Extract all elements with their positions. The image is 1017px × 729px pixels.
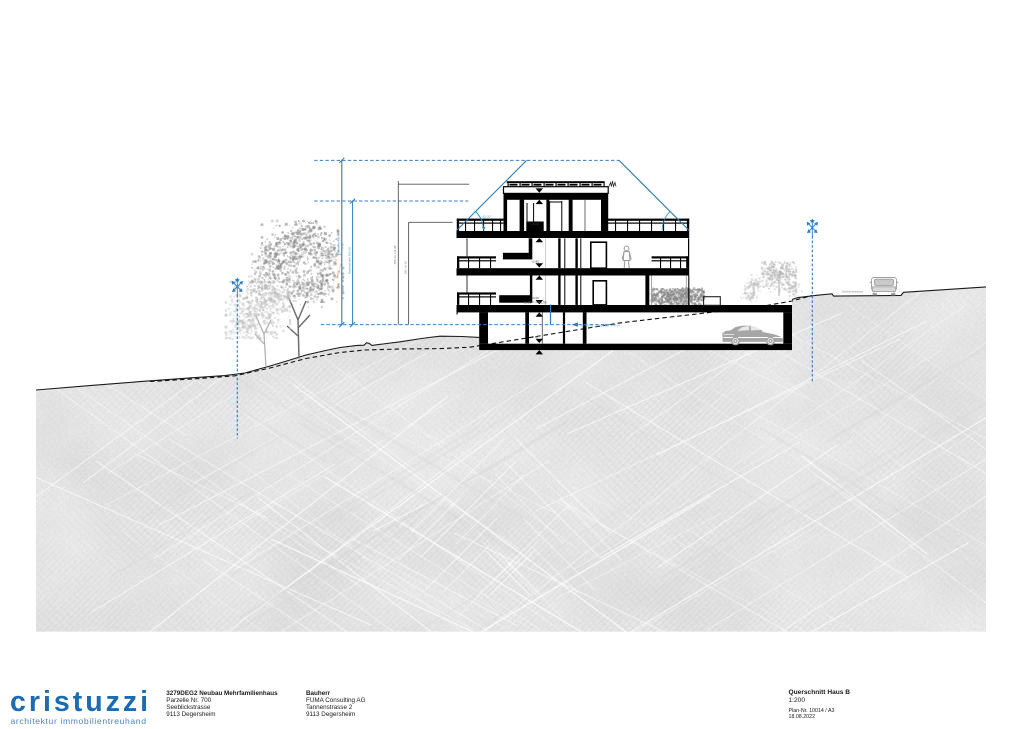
svg-text:±0.00 = +443.50: ±0.00 = +443.50 [524,300,547,304]
svg-text:+6.04: +6.04 [531,222,539,226]
svg-text:+2.86: +2.86 [531,259,539,263]
svg-text:+9.18: +9.18 [531,185,539,189]
svg-text:Seeblickstrasse: Seeblickstrasse [842,290,863,294]
svg-text:Gesimshöhe 453.10: Gesimshöhe 453.10 [347,247,351,274]
svg-text:OK Boden Tiefgarage 440.64: OK Boden Tiefgarage 440.64 [580,323,620,327]
svg-text:455.13 +11.98: 455.13 +11.98 [393,245,397,264]
svg-text:OK +9.18: OK +9.18 [404,261,408,274]
svg-text:Firsthöhe 456.58: Firsthöhe 456.58 [337,232,341,255]
svg-text:-2.86: -2.86 [531,335,538,339]
svg-text:45.00°: 45.00° [482,215,492,219]
